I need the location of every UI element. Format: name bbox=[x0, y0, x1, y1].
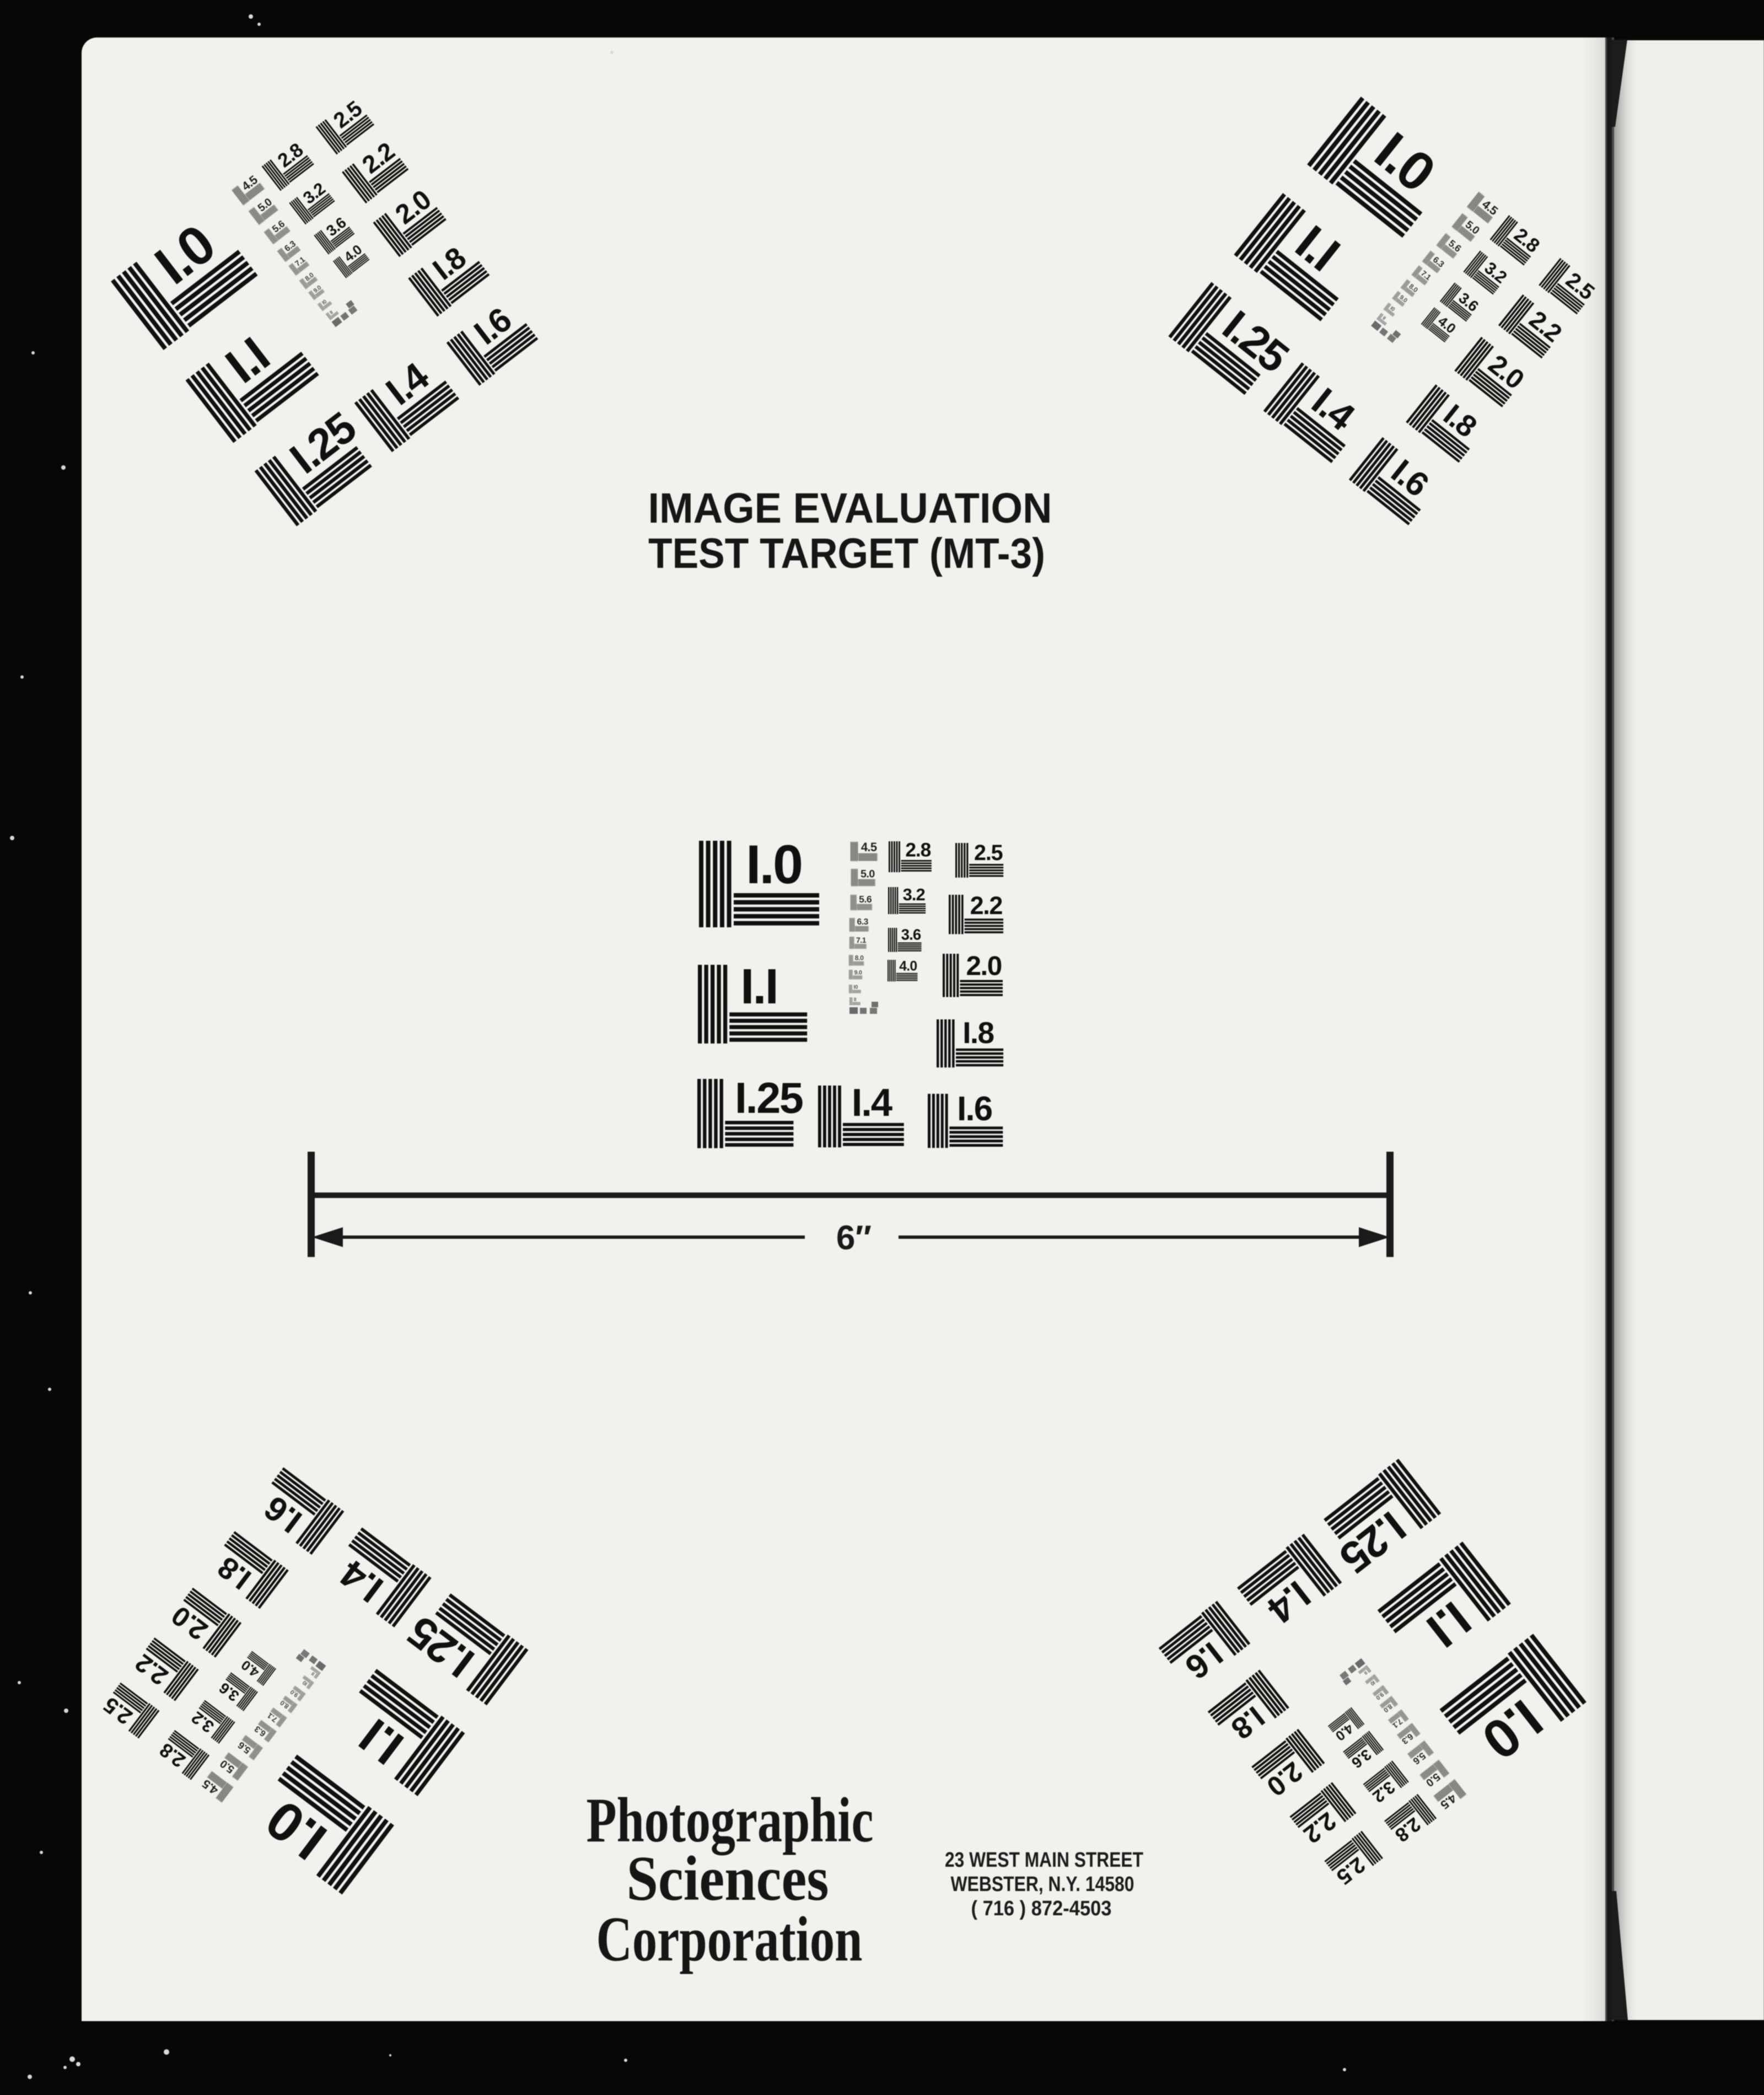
svg-text:6″: 6″ bbox=[836, 1219, 872, 1257]
svg-text:IMAGE EVALUATION: IMAGE EVALUATION bbox=[648, 485, 1052, 532]
svg-text:( 716 ) 872-4503: ( 716 ) 872-4503 bbox=[971, 1897, 1112, 1920]
svg-text:Corporation: Corporation bbox=[596, 1904, 863, 1975]
svg-text:TEST TARGET (MT-3): TEST TARGET (MT-3) bbox=[648, 530, 1045, 577]
svg-text:23 WEST MAIN STREET: 23 WEST MAIN STREET bbox=[945, 1849, 1143, 1872]
svg-text:Sciences: Sciences bbox=[627, 1844, 829, 1914]
svg-text:WEBSTER, N.Y. 14580: WEBSTER, N.Y. 14580 bbox=[951, 1873, 1134, 1896]
